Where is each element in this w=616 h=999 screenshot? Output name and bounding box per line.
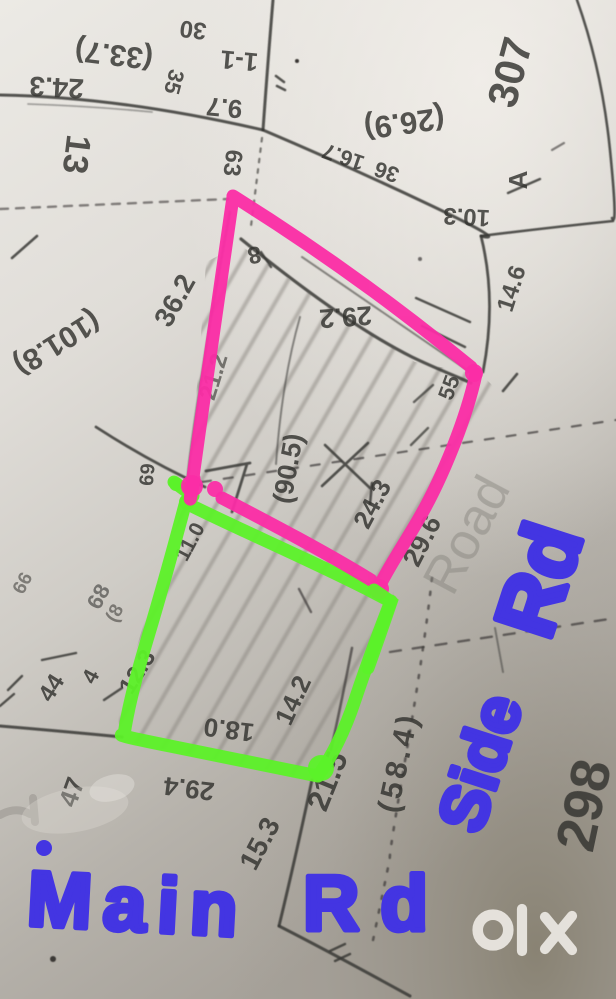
svg-text:63: 63 xyxy=(217,148,247,178)
svg-text:10.3: 10.3 xyxy=(443,202,491,231)
svg-text:A: A xyxy=(503,170,533,189)
svg-text:1-1: 1-1 xyxy=(219,44,259,77)
svg-text:69: 69 xyxy=(134,462,158,486)
svg-text:24.3: 24.3 xyxy=(28,71,84,105)
svg-text:13: 13 xyxy=(55,133,98,176)
svg-text:Rd: Rd xyxy=(303,859,449,947)
svg-text:29.2: 29.2 xyxy=(318,300,373,334)
svg-text:30: 30 xyxy=(178,14,208,44)
svg-text:29.4: 29.4 xyxy=(161,771,215,807)
svg-text:18.0: 18.0 xyxy=(202,712,256,748)
svg-text:9.7: 9.7 xyxy=(205,91,244,124)
svg-text:Main: Main xyxy=(25,854,251,953)
